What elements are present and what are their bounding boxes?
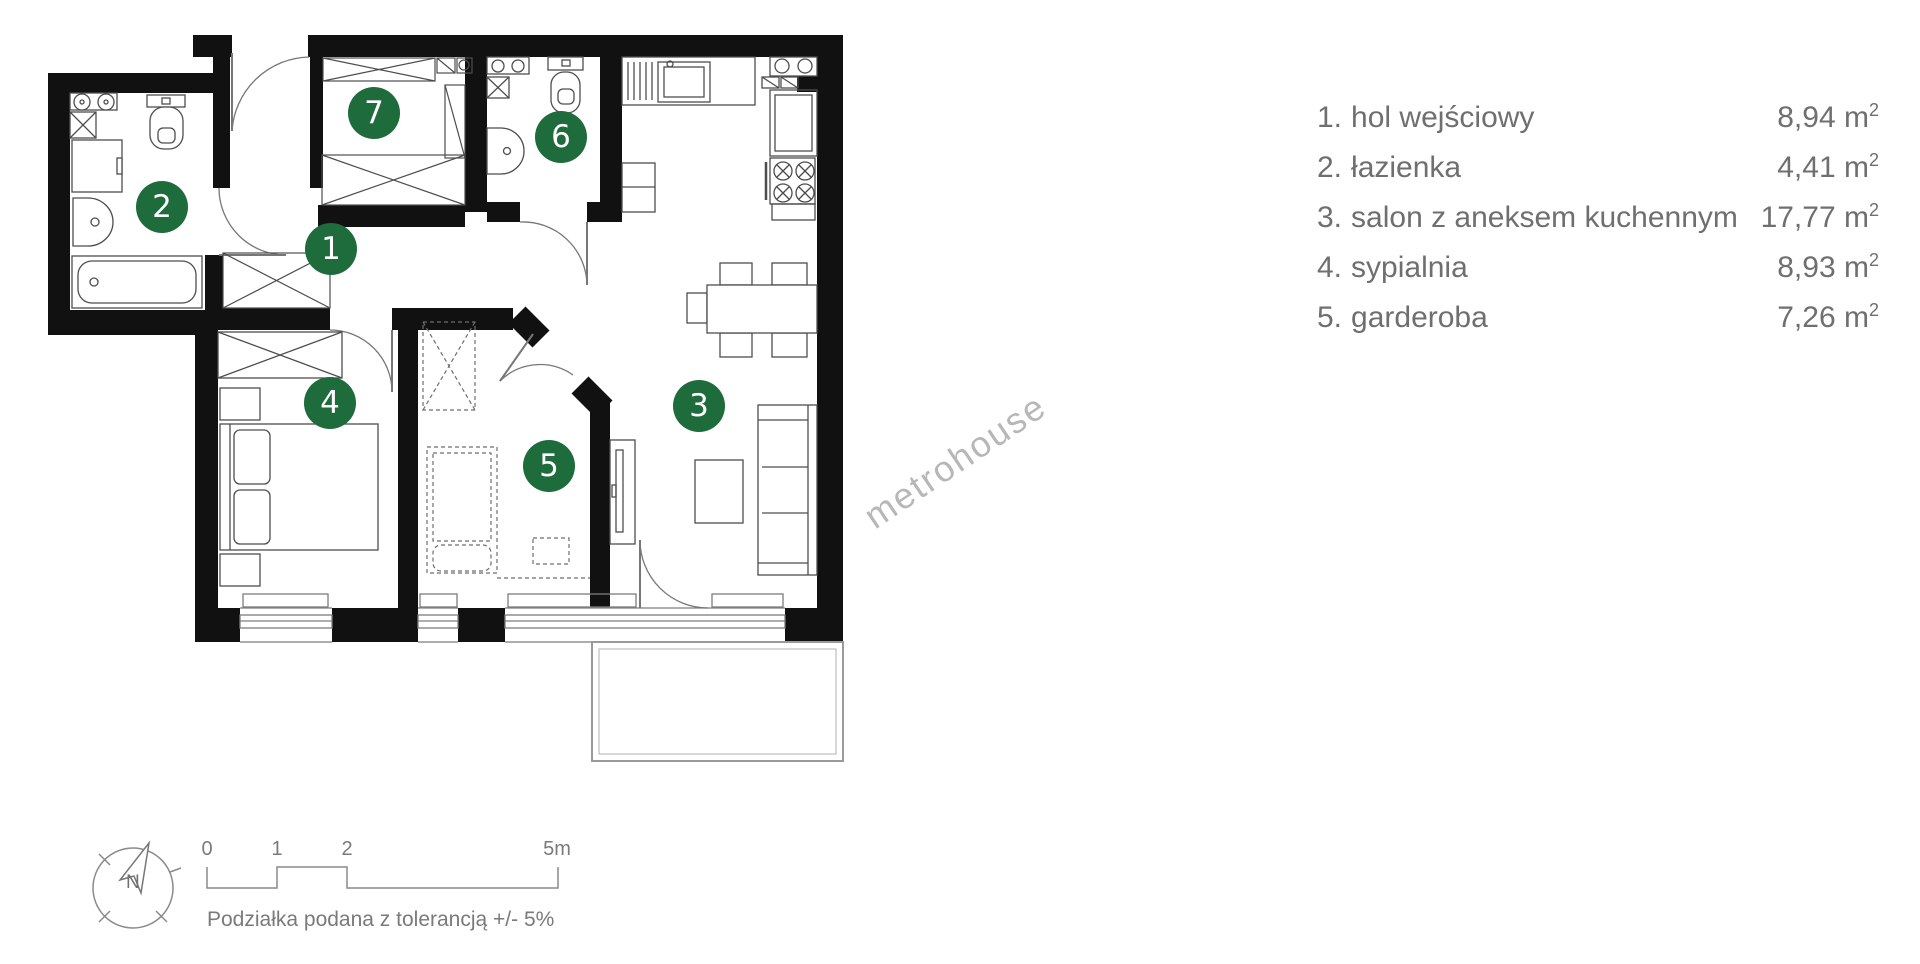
toilet-icon: [147, 95, 185, 149]
legend-row: 4. sypialnia 8,93 m2: [1317, 235, 1879, 285]
area-unit: m: [1844, 301, 1869, 334]
room-marker-3: 3: [673, 380, 725, 432]
area-unit-sup: 2: [1869, 100, 1879, 120]
chair: [720, 263, 752, 285]
chair: [772, 333, 807, 357]
toilet-icon: [548, 57, 583, 113]
room-marker-1: 1: [305, 223, 357, 275]
cabinet: [72, 140, 122, 192]
windows: [240, 594, 785, 642]
floor-plan-page: N 0 1 2 5m Podziałka podana z tolerancją…: [0, 0, 1920, 964]
area-unit: m: [1844, 101, 1869, 134]
chair: [687, 293, 707, 323]
area-unit: m: [1844, 151, 1869, 184]
room-marker-5: 5: [523, 440, 575, 492]
kitchen-fixtures: [622, 57, 817, 220]
legend-num: 4.: [1317, 243, 1342, 293]
dining-set: [687, 263, 817, 357]
area-unit: m: [1844, 201, 1869, 234]
wardrobes: [223, 58, 472, 308]
bathtub-icon: [72, 256, 202, 308]
chair: [772, 263, 807, 285]
area-value: 8,94: [1777, 101, 1835, 134]
legend-name: łazienka: [1351, 143, 1777, 193]
scale-tick-0: 0: [201, 838, 212, 860]
legend-num: 2.: [1317, 143, 1342, 193]
area-value: 8,93: [1777, 251, 1835, 284]
area-value: 4,41: [1777, 151, 1835, 184]
stove-icon: [766, 158, 815, 204]
nightstand: [220, 554, 260, 586]
sofa-icon: [758, 405, 817, 575]
dining-table: [707, 285, 817, 333]
legend-num: 1.: [1317, 93, 1342, 143]
room-marker-7: 7: [348, 87, 400, 139]
wardrobe-icon: [218, 332, 342, 378]
balcony: [592, 642, 843, 761]
area-unit-sup: 2: [1869, 250, 1879, 270]
room-legend: 1. hol wejściowy 8,94 m2 2. łazienka 4,4…: [1317, 85, 1879, 335]
scale-tick-2: 2: [341, 838, 352, 860]
legend-row: 2. łazienka 4,41 m2: [1317, 135, 1879, 185]
room-marker-6: 6: [535, 111, 587, 163]
scale-tick-1: 1: [271, 838, 282, 860]
tv-unit-icon: [610, 440, 635, 544]
nightstand: [220, 388, 260, 420]
washing-machine-icon: [70, 112, 96, 138]
scale-caption: Podziałka podana z tolerancją +/- 5%: [207, 908, 554, 931]
room-marker-2: 2: [136, 181, 188, 233]
bed-icon: [220, 424, 378, 550]
legend-num: 5.: [1317, 293, 1342, 343]
scale-bar: 0 1 2 5m Podziałka podana z tolerancją +…: [201, 838, 570, 931]
scale-tick-5m: 5m: [543, 838, 571, 860]
area-unit-sup: 2: [1869, 300, 1879, 320]
balcony-door: [640, 540, 708, 608]
area-value: 7,26: [1777, 301, 1835, 334]
legend-area: 7,26 m2: [1777, 285, 1879, 343]
kitchen-sink-icon: [658, 61, 710, 102]
washer-icon: [487, 77, 509, 98]
legend-num: 3.: [1317, 193, 1342, 243]
compass-icon: N: [93, 843, 181, 928]
wardrobe-icon: [323, 58, 435, 81]
fridge-icon: [770, 90, 817, 156]
legend-name: salon z aneksem kuchennym: [1351, 193, 1761, 243]
area-unit-sup: 2: [1869, 200, 1879, 220]
legend-name: sypialnia: [1351, 243, 1777, 293]
wardrobe-icon: [322, 155, 465, 205]
area-unit-sup: 2: [1869, 150, 1879, 170]
legend-name: garderoba: [1351, 293, 1777, 343]
legend-row: 3. salon z aneksem kuchennym 17,77 m2: [1317, 185, 1879, 235]
coffee-table: [695, 460, 743, 523]
legend-row: 5. garderoba 7,26 m2: [1317, 285, 1879, 335]
bathroom-door: [219, 188, 286, 255]
legend-name: hol wejściowy: [1351, 93, 1777, 143]
compass-north-label: N: [126, 872, 140, 893]
bedroom-furniture: [218, 332, 378, 586]
chair: [720, 333, 752, 357]
entry-door: [232, 53, 309, 131]
wc-door: [520, 222, 587, 285]
area-unit: m: [1844, 251, 1869, 284]
room-marker-4: 4: [304, 377, 356, 429]
legend-row: 1. hol wejściowy 8,94 m2: [1317, 85, 1879, 135]
kitchen-counter: [622, 57, 755, 105]
area-value: 17,77: [1761, 201, 1836, 234]
diagonal-walls: [517, 315, 604, 409]
